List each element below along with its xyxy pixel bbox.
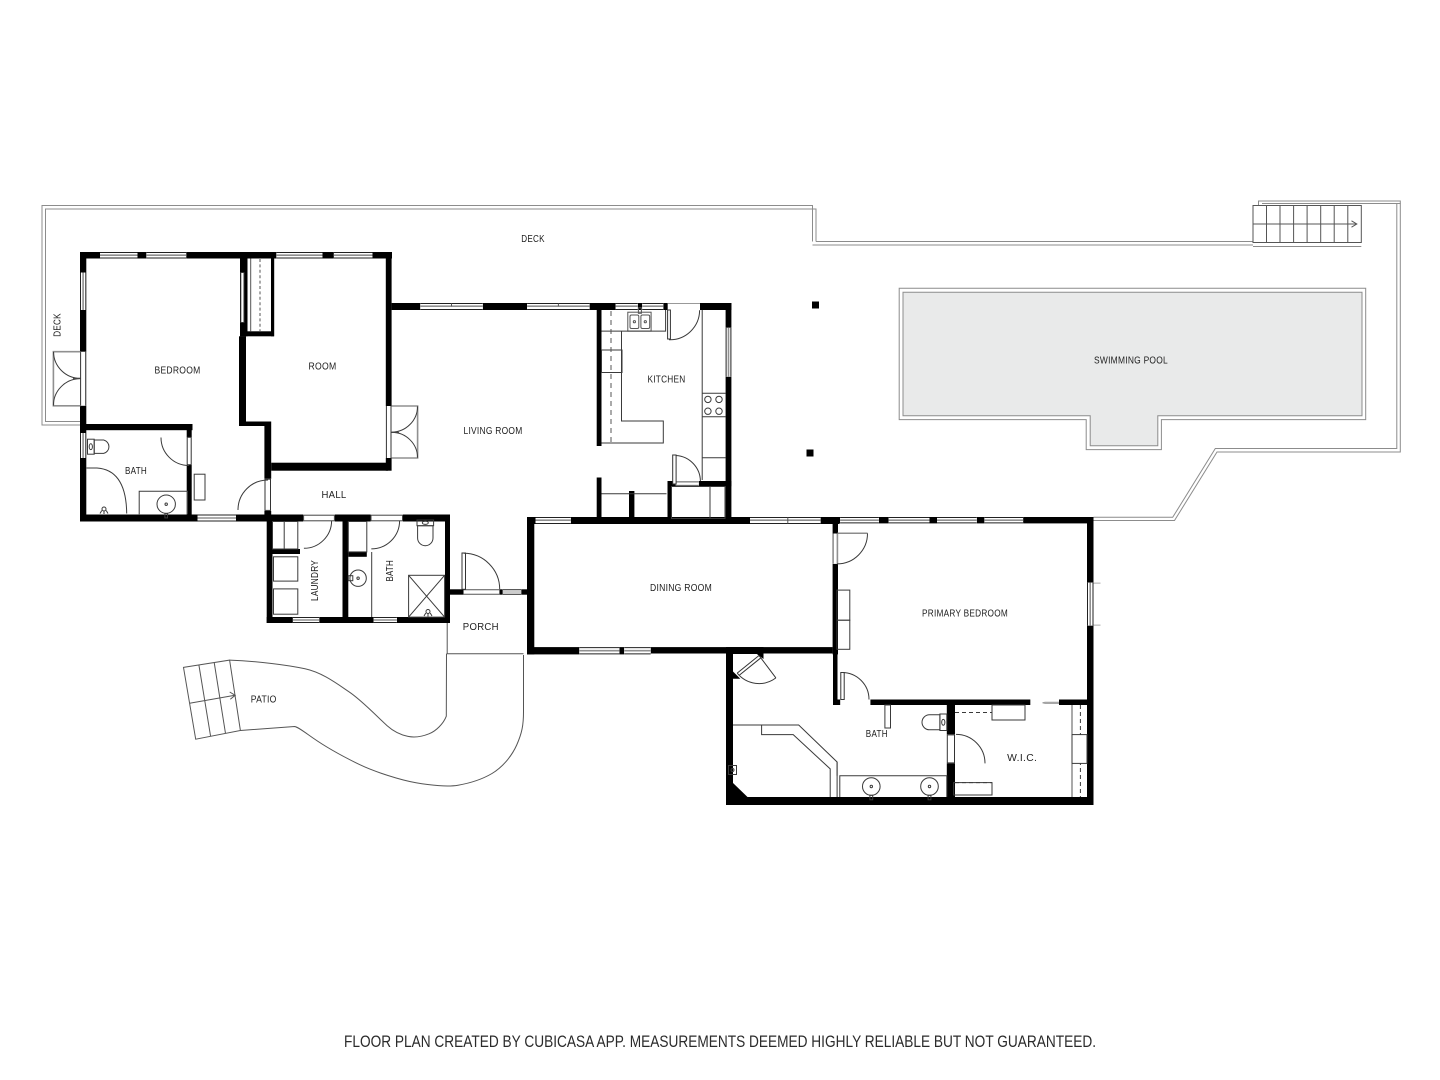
svg-text:BATH: BATH: [125, 466, 147, 477]
svg-text:FLOOR PLAN CREATED BY CUBICASA: FLOOR PLAN CREATED BY CUBICASA APP. MEAS…: [344, 1033, 1096, 1051]
svg-text:SWIMMING POOL: SWIMMING POOL: [1094, 356, 1168, 367]
svg-text:LAUNDRY: LAUNDRY: [310, 560, 321, 601]
svg-text:DECK: DECK: [521, 234, 545, 245]
svg-text:DINING ROOM: DINING ROOM: [650, 583, 712, 594]
svg-text:DECK: DECK: [53, 313, 64, 337]
svg-text:HALL: HALL: [322, 490, 347, 501]
svg-text:W.I.C.: W.I.C.: [1007, 753, 1037, 764]
svg-text:BEDROOM: BEDROOM: [155, 366, 201, 377]
svg-text:PRIMARY BEDROOM: PRIMARY BEDROOM: [922, 608, 1008, 619]
svg-text:KITCHEN: KITCHEN: [648, 375, 686, 386]
svg-text:LIVING ROOM: LIVING ROOM: [464, 426, 523, 437]
svg-text:BATH: BATH: [385, 560, 396, 582]
svg-text:PORCH: PORCH: [463, 622, 499, 633]
svg-text:ROOM: ROOM: [309, 362, 337, 373]
svg-text:BATH: BATH: [866, 729, 888, 740]
svg-text:PATIO: PATIO: [251, 695, 277, 706]
